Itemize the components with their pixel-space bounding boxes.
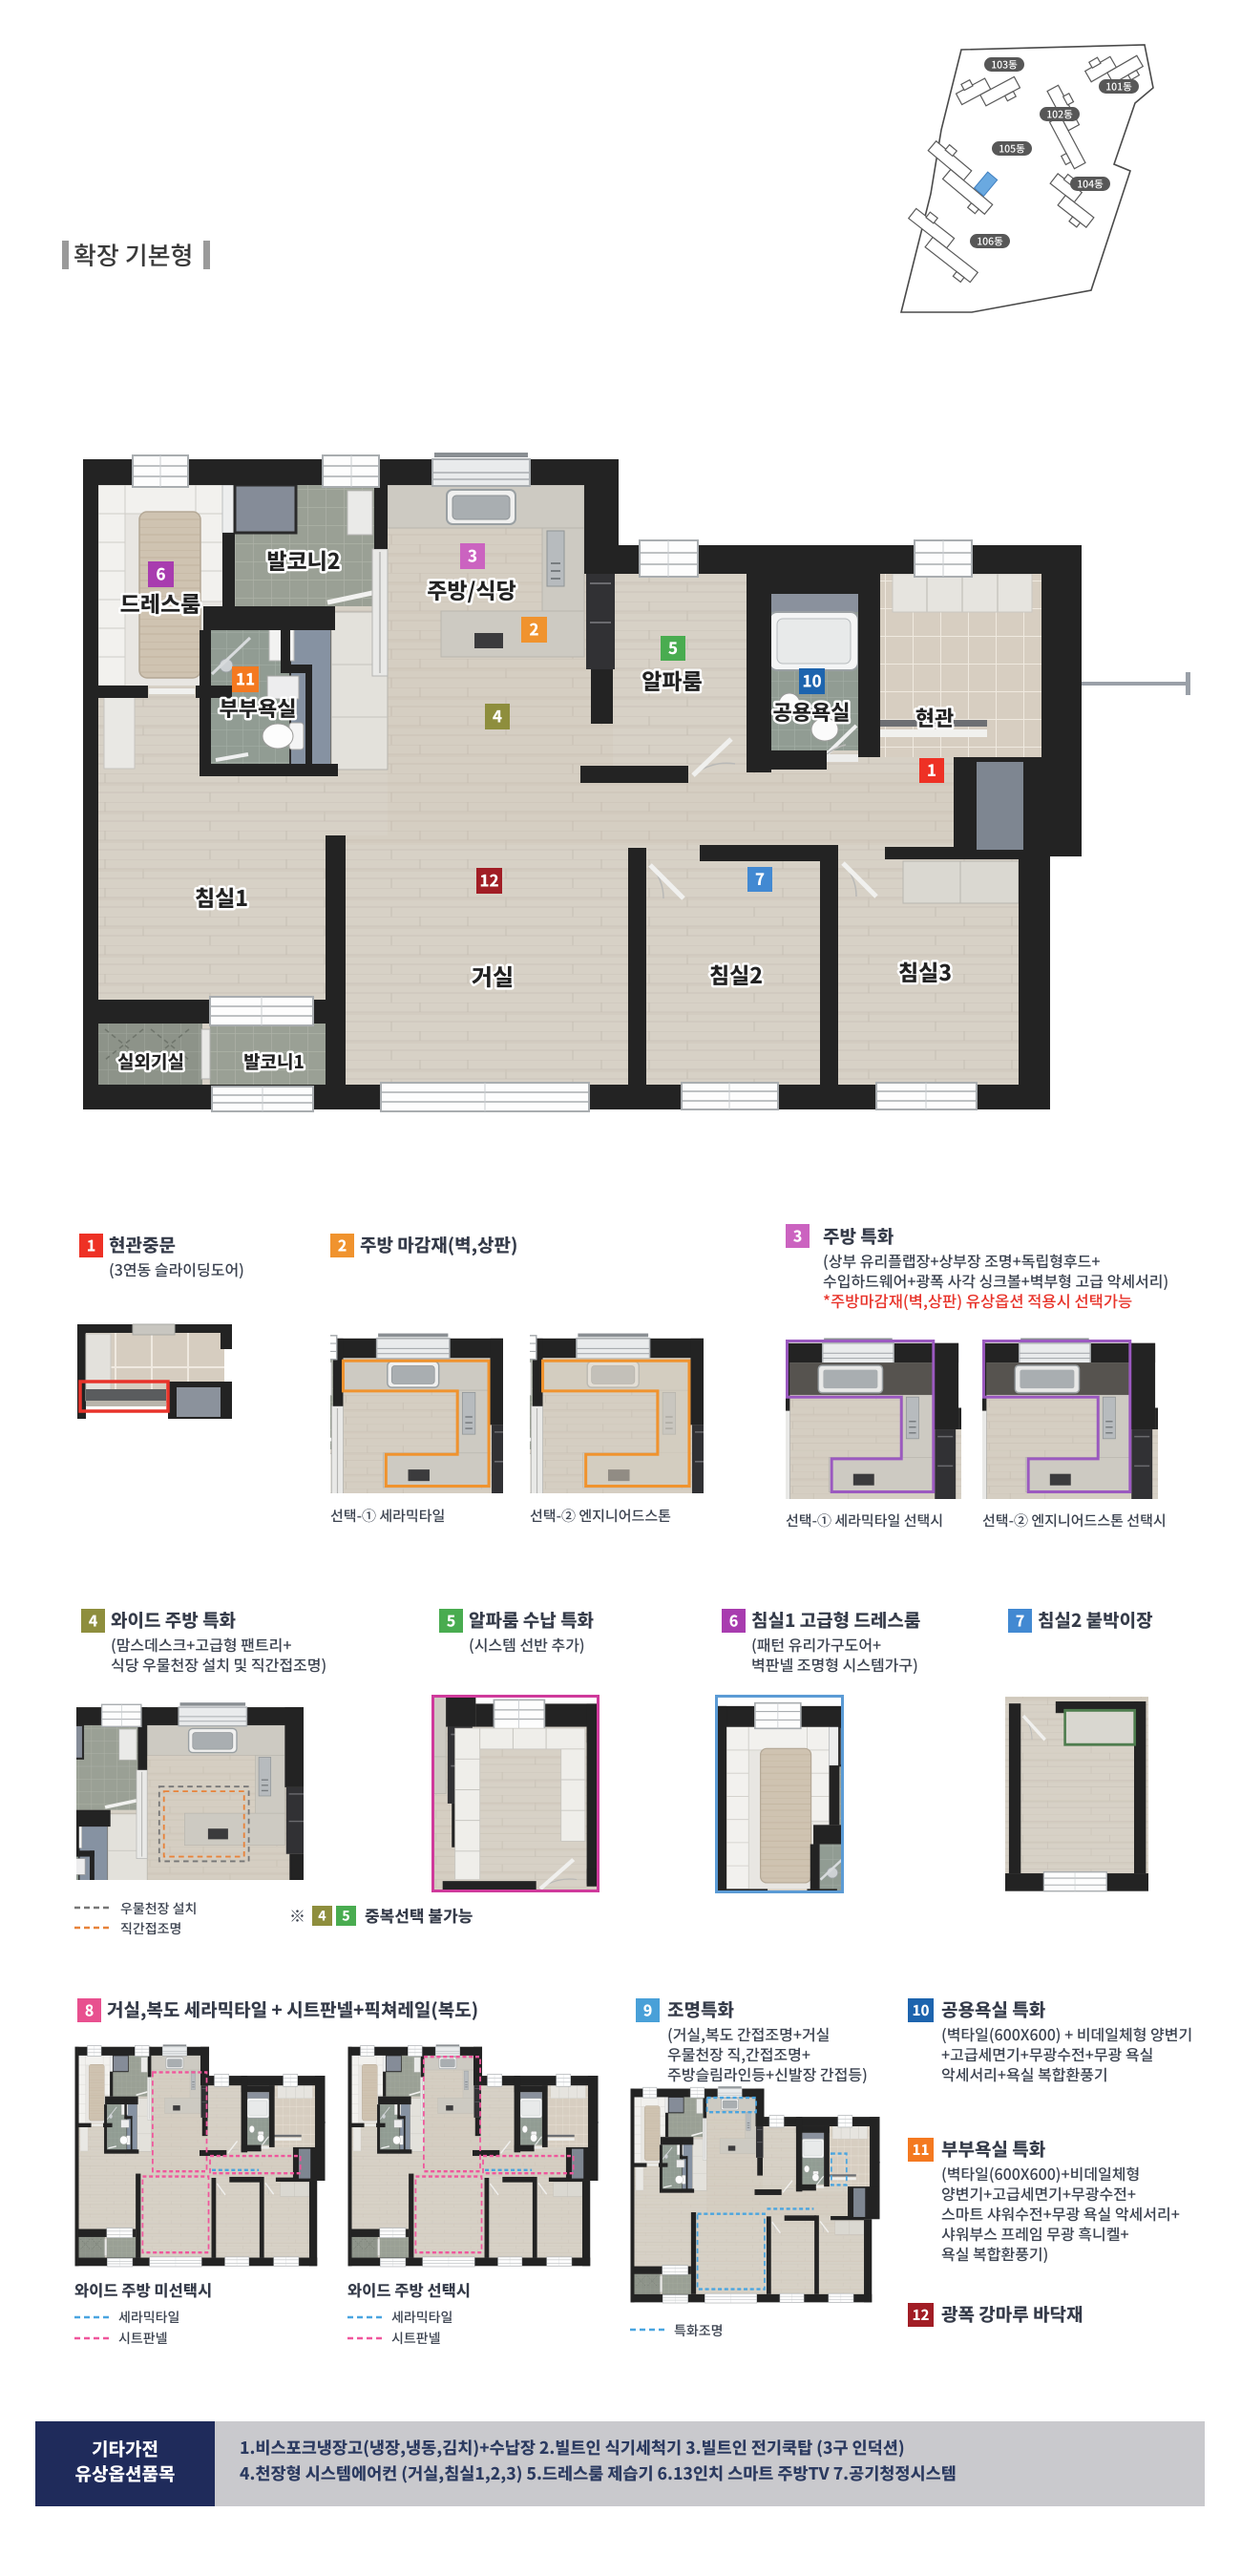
- svg-text:침실2 붙박이장: 침실2 붙박이장: [1038, 1607, 1153, 1633]
- svg-text:10: 10: [802, 668, 821, 692]
- svg-text:알파룸: 알파룸: [642, 664, 702, 696]
- svg-text:알파룸 수납 특화: 알파룸 수납 특화: [469, 1607, 594, 1633]
- svg-text:10: 10: [913, 2000, 930, 2020]
- svg-text:침실1 고급형 드레스룸: 침실1 고급형 드레스룸: [751, 1607, 920, 1633]
- svg-text:102동: 102동: [1046, 108, 1073, 122]
- svg-text:우물천장 설치: 우물천장 설치: [120, 1899, 197, 1918]
- svg-text:벽판넬 조명형 시스템가구): 벽판넬 조명형 시스템가구): [751, 1653, 918, 1676]
- svg-text:주방 마감재(벽,상판): 주방 마감재(벽,상판): [360, 1232, 517, 1257]
- svg-text:12: 12: [913, 2305, 930, 2325]
- svg-text:세라믹타일: 세라믹타일: [118, 2308, 179, 2327]
- svg-text:발코니1: 발코니1: [243, 1048, 305, 1074]
- svg-text:실외기실: 실외기실: [117, 1048, 184, 1074]
- svg-text:주방슬림라인등+신발장 간접등): 주방슬림라인등+신발장 간접등): [667, 2062, 868, 2085]
- svg-text:7: 7: [1016, 1608, 1025, 1631]
- svg-text:부부욕실 특화: 부부욕실 특화: [941, 2136, 1045, 2162]
- svg-text:광폭 강마루 바닥재: 광폭 강마루 바닥재: [941, 2301, 1083, 2327]
- svg-text:6: 6: [729, 1608, 739, 1631]
- svg-text:조명특화: 조명특화: [667, 1996, 734, 2022]
- svg-text:세라믹타일: 세라믹타일: [391, 2308, 452, 2327]
- svg-text:유상옵션품목: 유상옵션품목: [75, 2460, 176, 2486]
- svg-text:1.비스포크냉장고(냉장,냉동,김치)+수납장 2.빌트인: 1.비스포크냉장고(냉장,냉동,김치)+수납장 2.빌트인 식기세척기 3.빌트…: [240, 2436, 905, 2460]
- svg-text:1: 1: [927, 757, 936, 781]
- svg-text:11: 11: [236, 666, 255, 690]
- svg-text:기타가전: 기타가전: [92, 2436, 158, 2461]
- svg-text:직간접조명: 직간접조명: [120, 1919, 181, 1938]
- svg-text:시트판넬: 시트판넬: [391, 2329, 441, 2348]
- svg-text:5: 5: [668, 635, 678, 659]
- svg-text:4: 4: [89, 1608, 98, 1631]
- svg-text:악세서리+욕실 복합환풍기: 악세서리+욕실 복합환풍기: [941, 2062, 1108, 2085]
- svg-text:5: 5: [342, 1907, 349, 1926]
- svg-text:중복선택 불가능: 중복선택 불가능: [365, 1903, 473, 1927]
- svg-text:1: 1: [87, 1233, 96, 1256]
- svg-text:8: 8: [85, 1997, 95, 2020]
- svg-text:공용욕실 특화: 공용욕실 특화: [941, 1996, 1045, 2022]
- svg-text:12: 12: [479, 868, 498, 892]
- svg-text:선택-② 엔지니어드스톤 선택시: 선택-② 엔지니어드스톤 선택시: [982, 1510, 1167, 1531]
- svg-text:거실,복도 세라믹타일 + 시트판넬+픽쳐레일(복도): 거실,복도 세라믹타일 + 시트판넬+픽쳐레일(복도): [107, 1996, 478, 2022]
- svg-text:106동: 106동: [977, 235, 1003, 249]
- svg-text:선택-② 엔지니어드스톤: 선택-② 엔지니어드스톤: [530, 1506, 671, 1526]
- svg-text:발코니2: 발코니2: [266, 543, 340, 576]
- svg-text:4: 4: [318, 1907, 326, 1926]
- svg-text:식당 우물천장 설치 및 직간접조명): 식당 우물천장 설치 및 직간접조명): [111, 1653, 326, 1676]
- svg-text:4.천장형 시스템에어컨 (거실,침실1,2,3) 5.드레: 4.천장형 시스템에어컨 (거실,침실1,2,3) 5.드레스룸 제습기 6.1…: [240, 2461, 957, 2485]
- svg-text:현관중문: 현관중문: [109, 1232, 176, 1257]
- svg-text:욕실 복합환풍기): 욕실 복합환풍기): [941, 2242, 1048, 2265]
- svg-text:와이드 주방 선택시: 와이드 주방 선택시: [347, 2278, 471, 2301]
- svg-text:드레스룸: 드레스룸: [120, 586, 201, 619]
- svg-text:확장 기본형: 확장 기본형: [74, 237, 193, 272]
- svg-text:거실: 거실: [472, 959, 514, 992]
- svg-text:5: 5: [447, 1608, 456, 1631]
- svg-text:(3연동 슬라이딩도어): (3연동 슬라이딩도어): [109, 1257, 244, 1280]
- svg-text:선택-① 세라믹타일: 선택-① 세라믹타일: [330, 1506, 445, 1526]
- svg-text:101동: 101동: [1105, 80, 1132, 95]
- svg-text:현관: 현관: [915, 702, 954, 732]
- svg-text:침실2: 침실2: [709, 958, 763, 990]
- svg-text:2: 2: [338, 1233, 347, 1256]
- svg-text:4: 4: [493, 704, 502, 728]
- svg-text:*주방마감재(벽,상판) 유상옵션 적용시 선택가능: *주방마감재(벽,상판) 유상옵션 적용시 선택가능: [823, 1289, 1132, 1312]
- svg-text:선택-① 세라믹타일 선택시: 선택-① 세라믹타일 선택시: [786, 1510, 943, 1531]
- svg-text:침실3: 침실3: [898, 955, 952, 987]
- svg-text:105동: 105동: [999, 142, 1025, 157]
- svg-text:※: ※: [289, 1903, 305, 1927]
- svg-text:(시스템 선반 추가): (시스템 선반 추가): [469, 1633, 585, 1656]
- svg-text:6: 6: [156, 561, 165, 585]
- svg-text:9: 9: [643, 1997, 653, 2020]
- svg-text:특화조명: 특화조명: [674, 2321, 724, 2340]
- svg-text:와이드 주방 미선택시: 와이드 주방 미선택시: [74, 2278, 212, 2301]
- svg-text:시트판넬: 시트판넬: [118, 2329, 168, 2348]
- svg-text:103동: 103동: [991, 58, 1018, 73]
- svg-text:3: 3: [793, 1223, 803, 1246]
- svg-text:와이드 주방 특화: 와이드 주방 특화: [111, 1607, 236, 1633]
- svg-text:104동: 104동: [1077, 178, 1104, 192]
- svg-text:공용욕실: 공용욕실: [773, 696, 851, 727]
- svg-text:부부욕실: 부부욕실: [220, 692, 297, 723]
- svg-text:2: 2: [529, 617, 538, 641]
- svg-text:3: 3: [468, 543, 477, 567]
- svg-text:11: 11: [913, 2140, 930, 2160]
- svg-text:침실1: 침실1: [195, 880, 248, 913]
- svg-text:7: 7: [755, 866, 765, 890]
- svg-text:주방 특화: 주방 특화: [823, 1223, 894, 1249]
- svg-text:주방/식당: 주방/식당: [427, 573, 516, 605]
